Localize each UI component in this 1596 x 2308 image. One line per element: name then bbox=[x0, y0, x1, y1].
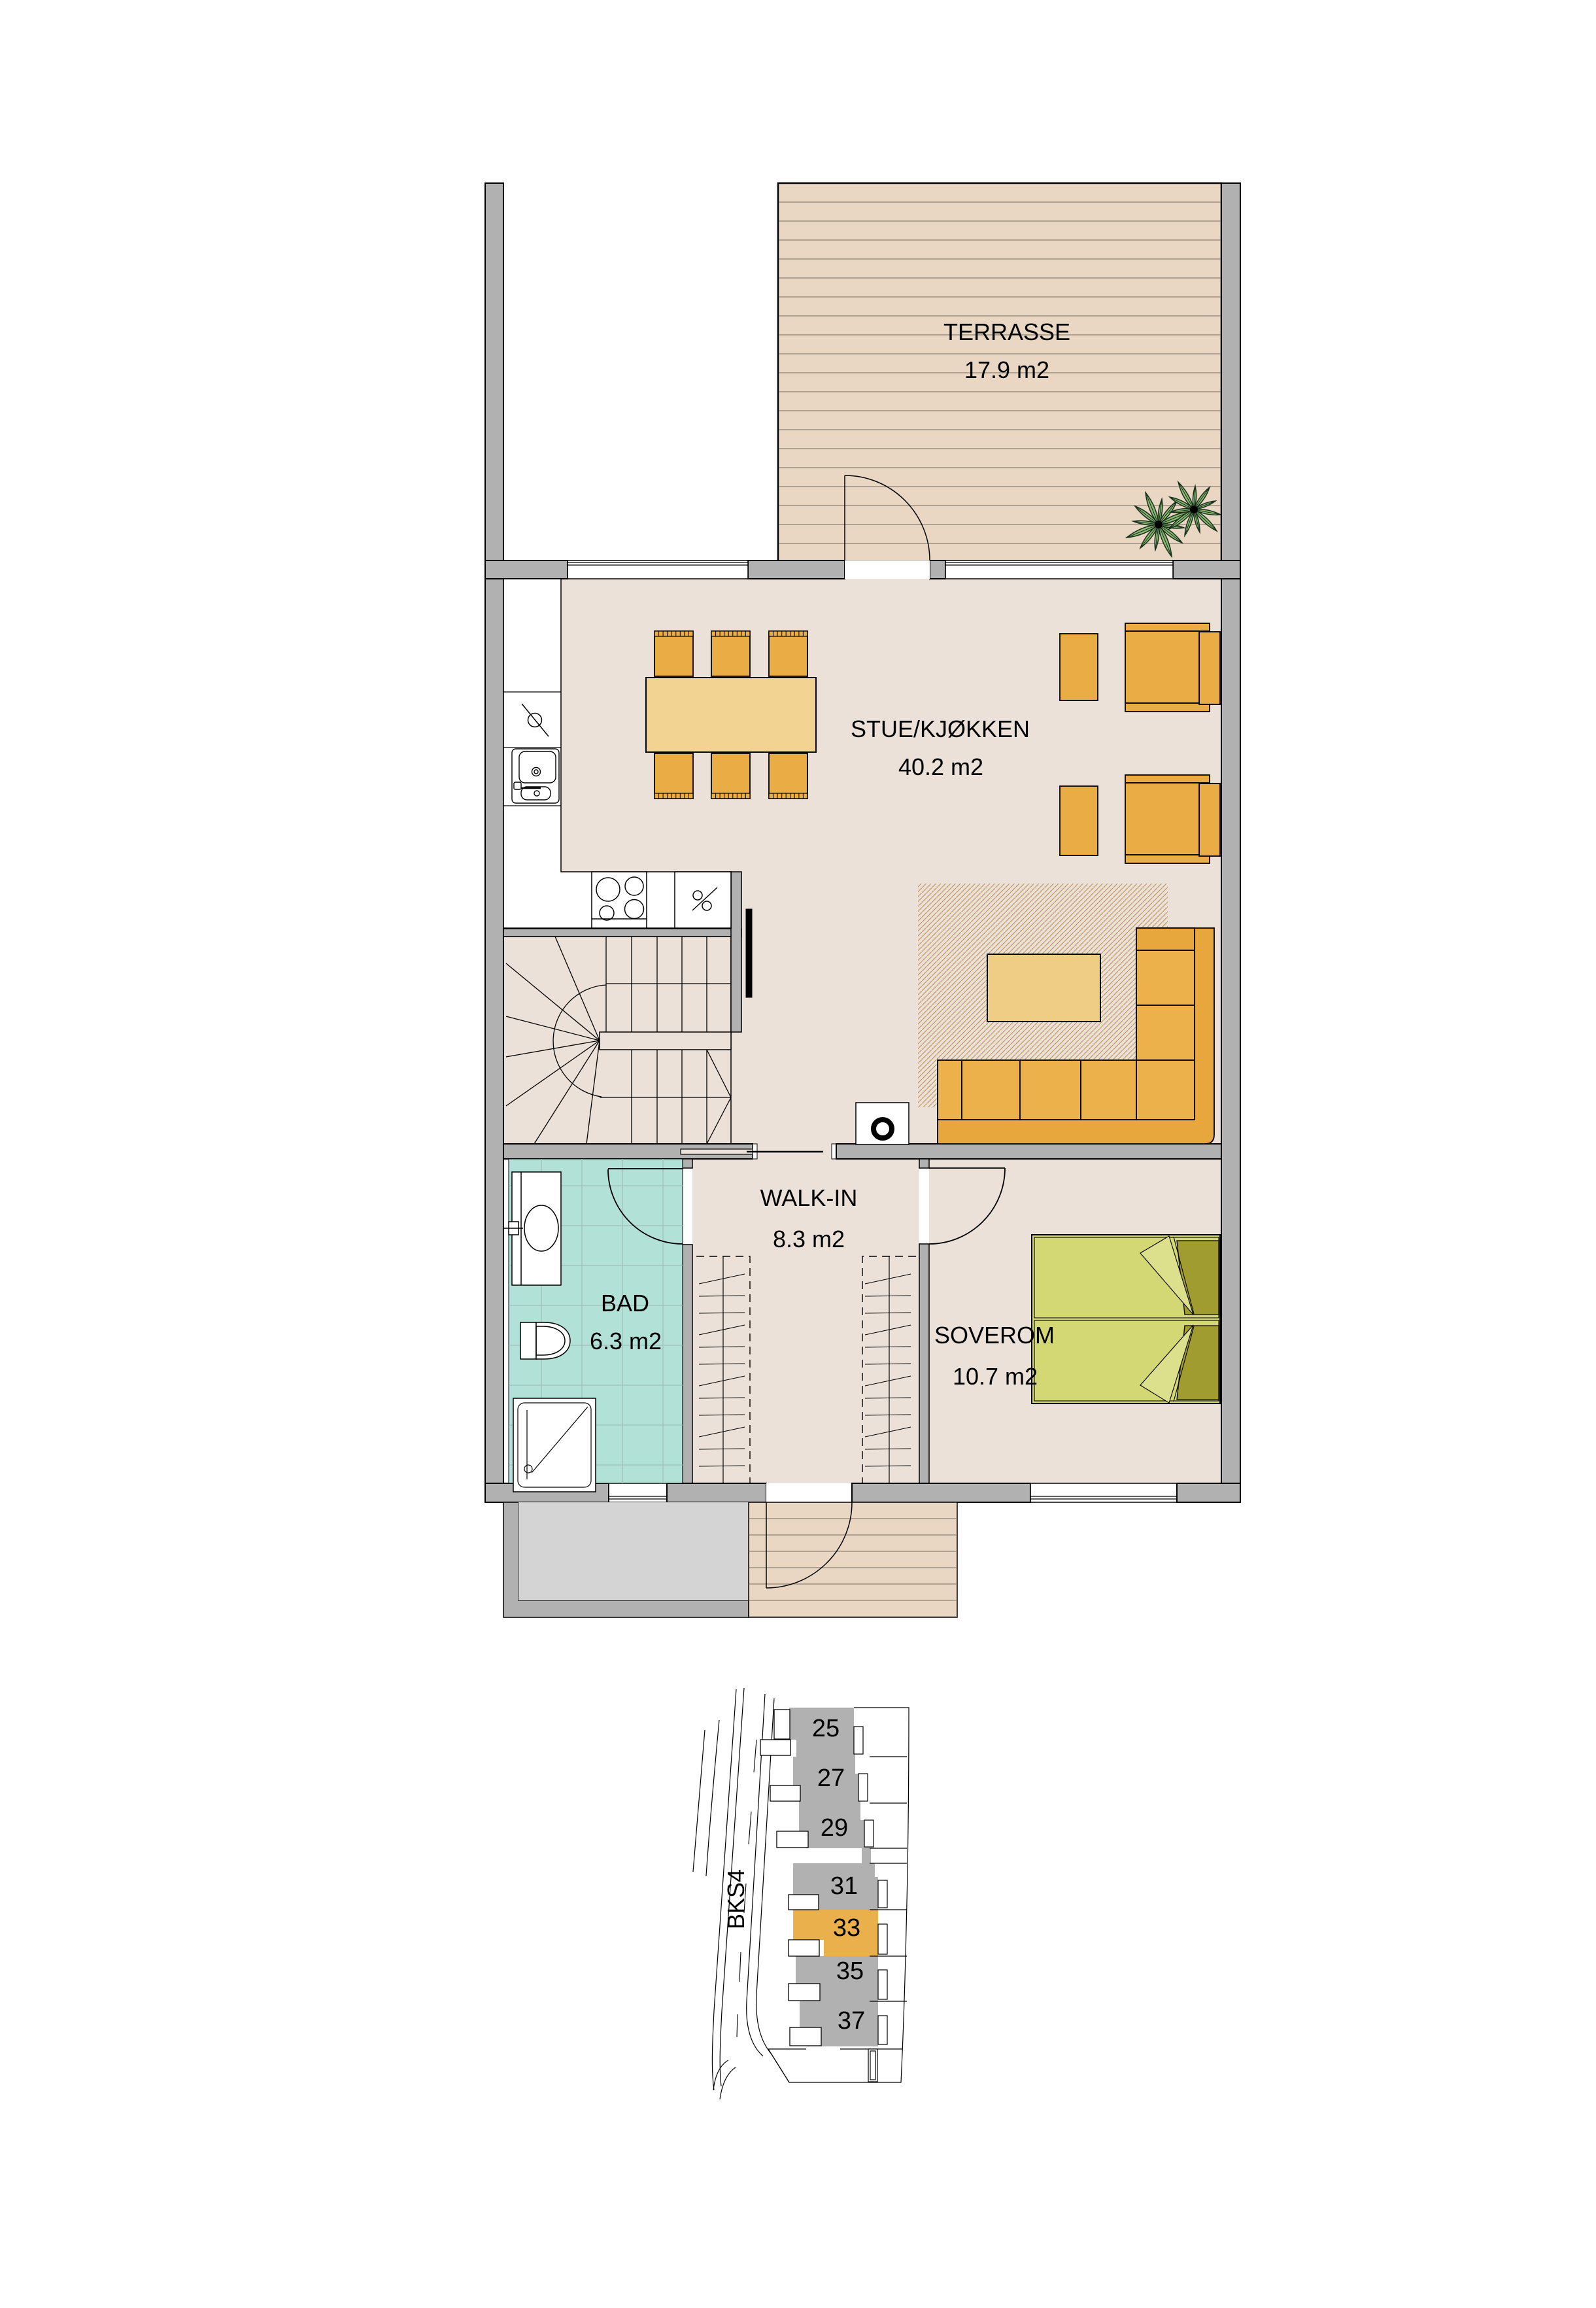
svg-text:17.9 m2: 17.9 m2 bbox=[964, 356, 1049, 383]
svg-text:6.3 m2: 6.3 m2 bbox=[590, 1328, 662, 1354]
svg-text:WALK-IN: WALK-IN bbox=[760, 1184, 858, 1211]
svg-text:8.3 m2: 8.3 m2 bbox=[773, 1226, 845, 1252]
svg-text:40.2 m2: 40.2 m2 bbox=[898, 753, 983, 780]
svg-text:SOVEROM: SOVEROM bbox=[934, 1322, 1055, 1349]
svg-text:BAD: BAD bbox=[601, 1290, 649, 1317]
svg-text:27: 27 bbox=[817, 1765, 845, 1792]
svg-text:29: 29 bbox=[821, 1814, 848, 1842]
svg-text:31: 31 bbox=[830, 1872, 858, 1900]
svg-text:STUE/KJØKKEN: STUE/KJØKKEN bbox=[851, 715, 1030, 742]
svg-text:BKS4: BKS4 bbox=[722, 1869, 749, 1929]
svg-text:37: 37 bbox=[838, 2007, 865, 2035]
svg-text:10.7 m2: 10.7 m2 bbox=[953, 1363, 1038, 1390]
svg-text:35: 35 bbox=[836, 1957, 864, 1985]
svg-text:TERRASSE: TERRASSE bbox=[943, 319, 1070, 345]
svg-text:25: 25 bbox=[812, 1715, 840, 1742]
svg-text:33: 33 bbox=[833, 1914, 860, 1942]
